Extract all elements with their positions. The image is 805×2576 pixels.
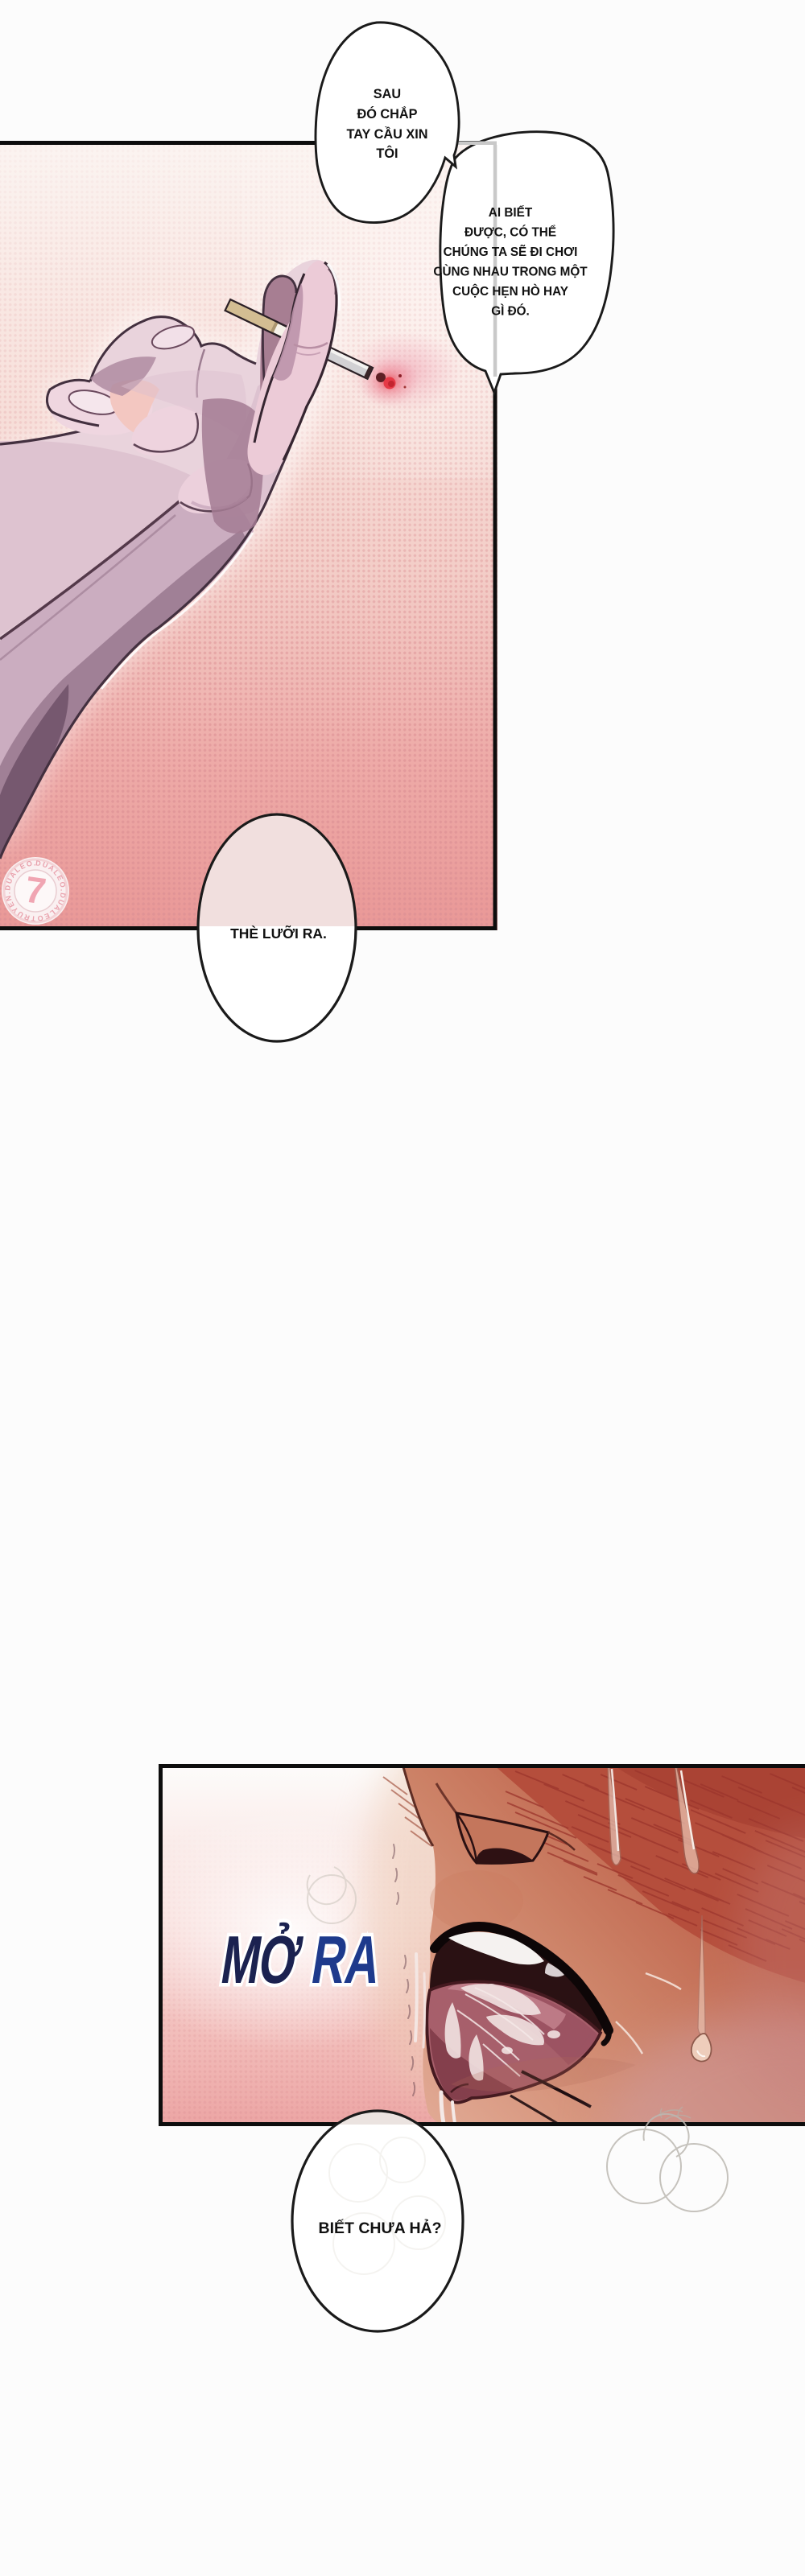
svg-text:ĐƯỢC, CÓ THỂ: ĐƯỢC, CÓ THỂ	[464, 225, 556, 240]
svg-text:TÔI: TÔI	[376, 146, 398, 161]
svg-text:AI BIẾT: AI BIẾT	[489, 206, 533, 220]
svg-text:BIẾT CHƯA HẢ?: BIẾT CHƯA HẢ?	[318, 2219, 441, 2237]
svg-text:MỞ RA: MỞ RA	[217, 1921, 386, 1997]
svg-text:CHÚNG TA SẼ ĐI CHƠI: CHÚNG TA SẼ ĐI CHƠI	[444, 245, 578, 259]
svg-text:CUỘC HẸN HÒ HAY: CUỘC HẸN HÒ HAY	[452, 284, 568, 299]
svg-text:THÈ LƯỠI RA.: THÈ LƯỠI RA.	[230, 925, 327, 942]
svg-text:SAU: SAU	[374, 87, 401, 101]
svg-text:TAY CẦU XIN: TAY CẦU XIN	[346, 126, 427, 142]
svg-text:GÌ ĐÓ.: GÌ ĐÓ.	[491, 304, 530, 319]
svg-text:ĐÓ CHẮP: ĐÓ CHẮP	[357, 106, 417, 122]
svg-text:CÙNG NHAU TRONG MỘT: CÙNG NHAU TRONG MỘT	[433, 265, 588, 279]
